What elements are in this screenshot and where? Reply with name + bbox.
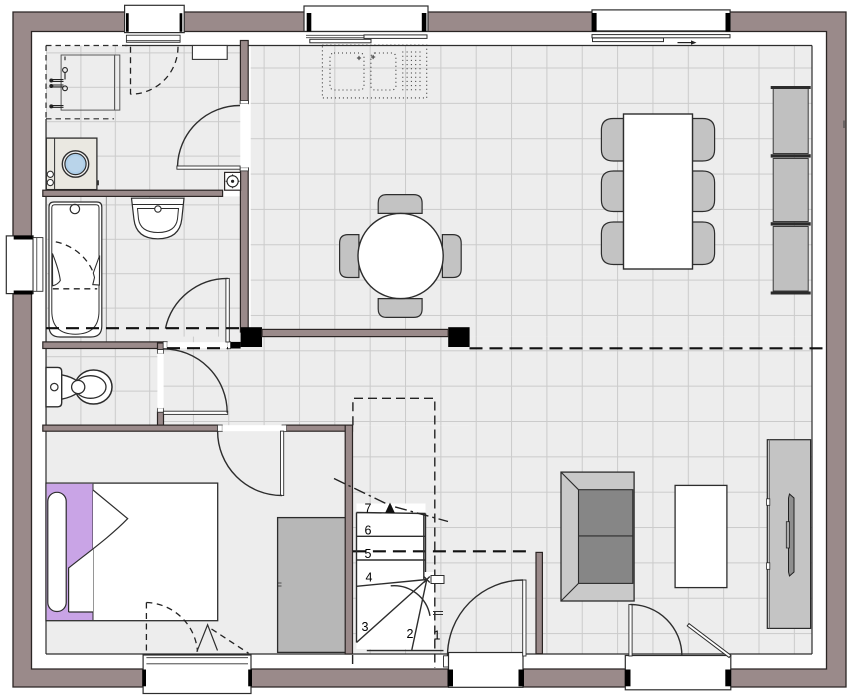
svg-text:2: 2 bbox=[407, 627, 414, 641]
svg-text:1: 1 bbox=[434, 629, 441, 643]
svg-text:7: 7 bbox=[365, 502, 372, 516]
svg-text:4: 4 bbox=[366, 571, 373, 585]
svg-text:3: 3 bbox=[362, 620, 369, 634]
svg-text:5: 5 bbox=[365, 547, 372, 561]
svg-text:6: 6 bbox=[365, 524, 372, 538]
